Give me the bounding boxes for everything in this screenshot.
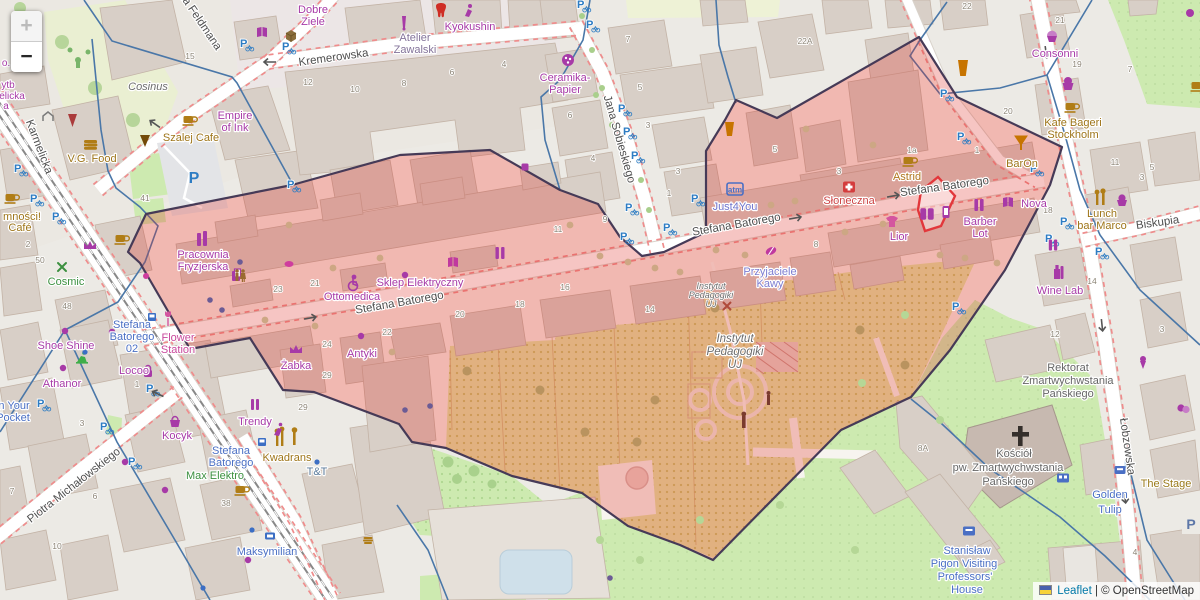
svg-text:Nova: Nova bbox=[1021, 198, 1048, 210]
svg-text:Max Elektro: Max Elektro bbox=[186, 470, 244, 482]
svg-text:6: 6 bbox=[568, 110, 573, 120]
svg-text:Flower: Flower bbox=[161, 332, 194, 344]
svg-text:Batorego: Batorego bbox=[110, 331, 155, 343]
svg-text:9: 9 bbox=[603, 214, 608, 224]
svg-text:Stanisław: Stanisław bbox=[943, 545, 990, 557]
svg-text:1: 1 bbox=[667, 188, 672, 198]
svg-text:Pigon Visiting: Pigon Visiting bbox=[931, 558, 997, 570]
svg-text:Professors': Professors' bbox=[938, 571, 993, 583]
svg-text:Kwadrans: Kwadrans bbox=[263, 452, 312, 464]
svg-text:Lior: Lior bbox=[890, 231, 909, 243]
svg-text:Just4You: Just4You bbox=[713, 201, 758, 213]
svg-text:Lunch: Lunch bbox=[1087, 208, 1117, 220]
svg-text:2: 2 bbox=[26, 239, 31, 249]
svg-text:5: 5 bbox=[638, 82, 643, 92]
svg-text:1: 1 bbox=[135, 379, 140, 389]
svg-text:Kafe Bageri: Kafe Bageri bbox=[1044, 117, 1101, 129]
svg-text:10: 10 bbox=[52, 541, 62, 551]
svg-text:T&T: T&T bbox=[307, 466, 328, 478]
svg-text:Maksymilian: Maksymilian bbox=[237, 546, 298, 558]
svg-text:a: a bbox=[3, 101, 9, 112]
svg-text:bar Marco: bar Marco bbox=[1077, 220, 1127, 232]
svg-text:Żabka: Żabka bbox=[281, 359, 312, 372]
svg-text:The Stage: The Stage bbox=[1141, 478, 1192, 490]
svg-text:Station: Station bbox=[161, 344, 195, 356]
svg-text:4: 4 bbox=[502, 59, 507, 69]
svg-text:Stefana: Stefana bbox=[212, 445, 251, 457]
svg-text:20: 20 bbox=[1003, 106, 1013, 116]
svg-text:Ottomedica: Ottomedica bbox=[324, 291, 381, 303]
svg-text:21: 21 bbox=[310, 278, 320, 288]
svg-text:pw. Zmartwychwstania: pw. Zmartwychwstania bbox=[953, 462, 1065, 474]
svg-text:Cosinus: Cosinus bbox=[128, 81, 168, 93]
svg-text:7: 7 bbox=[626, 34, 631, 44]
svg-text:8: 8 bbox=[814, 239, 819, 249]
svg-text:V.G. Food: V.G. Food bbox=[67, 153, 116, 165]
svg-text:Cosmic: Cosmic bbox=[48, 276, 85, 288]
svg-text:Pracownia: Pracownia bbox=[177, 249, 229, 261]
svg-text:3: 3 bbox=[837, 166, 842, 176]
svg-text:Wine Lab: Wine Lab bbox=[1037, 285, 1083, 297]
svg-text:7: 7 bbox=[10, 486, 15, 496]
svg-text:Dobre: Dobre bbox=[298, 4, 328, 16]
svg-text:1a: 1a bbox=[907, 145, 917, 155]
svg-text:4: 4 bbox=[591, 153, 596, 163]
svg-text:29: 29 bbox=[298, 402, 308, 412]
svg-text:14: 14 bbox=[1087, 276, 1097, 286]
svg-text:Fryzjerska: Fryzjerska bbox=[178, 261, 230, 273]
svg-text:Przyjaciele: Przyjaciele bbox=[743, 266, 796, 278]
svg-text:16: 16 bbox=[560, 282, 570, 292]
svg-text:Szalej Cafe: Szalej Cafe bbox=[163, 132, 219, 144]
svg-text:18: 18 bbox=[515, 299, 525, 309]
svg-text:Pańskiego: Pańskiego bbox=[1042, 388, 1093, 400]
svg-text:Empire: Empire bbox=[218, 110, 253, 122]
svg-text:Locoo: Locoo bbox=[119, 365, 149, 377]
svg-text:22A: 22A bbox=[797, 36, 812, 46]
svg-text:Batorego: Batorego bbox=[209, 457, 254, 469]
svg-text:5: 5 bbox=[773, 144, 778, 154]
svg-text:House: House bbox=[951, 584, 983, 596]
svg-text:Athanor: Athanor bbox=[43, 378, 82, 390]
svg-text:20: 20 bbox=[455, 309, 465, 319]
svg-text:38: 38 bbox=[221, 498, 231, 508]
svg-text:Instytut: Instytut bbox=[716, 333, 754, 345]
svg-text:50: 50 bbox=[35, 255, 45, 265]
svg-text:Shoe Shine: Shoe Shine bbox=[38, 340, 95, 352]
svg-text:Ceramika-: Ceramika- bbox=[540, 72, 591, 84]
svg-text:Zmartwychwstania: Zmartwychwstania bbox=[1022, 375, 1114, 387]
svg-text:6: 6 bbox=[93, 491, 98, 501]
svg-text:22: 22 bbox=[962, 1, 972, 11]
svg-text:12: 12 bbox=[1050, 329, 1060, 339]
svg-text:5: 5 bbox=[1150, 162, 1155, 172]
svg-text:41: 41 bbox=[140, 193, 150, 203]
svg-text:10: 10 bbox=[350, 84, 360, 94]
svg-text:3: 3 bbox=[80, 418, 85, 428]
svg-text:3: 3 bbox=[1160, 324, 1165, 334]
svg-text:Kocyk: Kocyk bbox=[162, 430, 192, 442]
svg-text:Atelier: Atelier bbox=[399, 32, 431, 44]
svg-text:Kyokushin: Kyokushin bbox=[445, 21, 496, 33]
svg-text:atm: atm bbox=[728, 186, 742, 195]
svg-text:02: 02 bbox=[126, 343, 138, 355]
svg-text:Antyki: Antyki bbox=[347, 348, 377, 360]
svg-text:o.: o. bbox=[2, 58, 10, 69]
svg-text:Pedagogiki: Pedagogiki bbox=[707, 346, 764, 358]
svg-text:24: 24 bbox=[322, 339, 332, 349]
svg-text:Kościół: Kościół bbox=[996, 448, 1032, 460]
svg-text:Zawalski: Zawalski bbox=[394, 44, 437, 56]
svg-text:Stefana: Stefana bbox=[113, 319, 152, 331]
svg-text:19: 19 bbox=[1072, 59, 1082, 69]
svg-text:7: 7 bbox=[1128, 64, 1133, 74]
svg-text:48: 48 bbox=[62, 301, 72, 311]
svg-text:Rektorat: Rektorat bbox=[1047, 362, 1089, 374]
svg-text:4: 4 bbox=[1133, 547, 1138, 557]
svg-text:UJ: UJ bbox=[706, 299, 717, 309]
svg-text:Barber: Barber bbox=[963, 216, 996, 228]
svg-text:Sklep Elektryczny: Sklep Elektryczny bbox=[377, 277, 464, 289]
svg-text:P: P bbox=[189, 170, 200, 187]
svg-text:3: 3 bbox=[1140, 172, 1145, 182]
svg-text:29: 29 bbox=[322, 370, 332, 380]
svg-text:23: 23 bbox=[273, 284, 283, 294]
svg-text:Tulip: Tulip bbox=[1098, 504, 1121, 516]
svg-text:Café: Café bbox=[8, 222, 31, 234]
svg-text:8: 8 bbox=[402, 78, 407, 88]
svg-text:Lot: Lot bbox=[972, 228, 987, 240]
svg-text:Consonni: Consonni bbox=[1032, 48, 1078, 60]
svg-text:Papier: Papier bbox=[549, 84, 581, 96]
svg-text:11: 11 bbox=[554, 224, 563, 234]
svg-text:Trendy: Trendy bbox=[238, 416, 272, 428]
svg-text:12: 12 bbox=[303, 77, 313, 87]
svg-text:UJ: UJ bbox=[728, 359, 742, 371]
svg-text:Pańskiego: Pańskiego bbox=[982, 476, 1033, 488]
svg-text:22: 22 bbox=[382, 327, 392, 337]
svg-text:21: 21 bbox=[1055, 15, 1065, 25]
svg-text:6: 6 bbox=[450, 67, 455, 77]
svg-text:BarOn: BarOn bbox=[1006, 158, 1038, 170]
svg-text:Golden: Golden bbox=[1092, 489, 1127, 501]
svg-text:3: 3 bbox=[646, 120, 651, 130]
svg-text:15: 15 bbox=[185, 51, 195, 61]
svg-text:P: P bbox=[1186, 516, 1195, 532]
svg-text:ytb: ytb bbox=[1, 80, 15, 91]
svg-text:n Your: n Your bbox=[0, 400, 30, 412]
svg-text:Stockholm: Stockholm bbox=[1047, 129, 1098, 141]
svg-text:Ziele: Ziele bbox=[301, 16, 325, 28]
svg-text:Astrid: Astrid bbox=[893, 171, 921, 183]
svg-text:3: 3 bbox=[676, 166, 681, 176]
svg-text:11: 11 bbox=[1111, 157, 1120, 167]
svg-text:1: 1 bbox=[975, 145, 980, 155]
svg-text:of Ink: of Ink bbox=[222, 122, 249, 134]
svg-text:Pocket: Pocket bbox=[0, 412, 30, 424]
svg-text:14: 14 bbox=[645, 304, 655, 314]
svg-text:8A: 8A bbox=[918, 443, 929, 453]
svg-text:Kawy: Kawy bbox=[757, 278, 784, 290]
svg-text:Słoneczna: Słoneczna bbox=[823, 195, 875, 207]
